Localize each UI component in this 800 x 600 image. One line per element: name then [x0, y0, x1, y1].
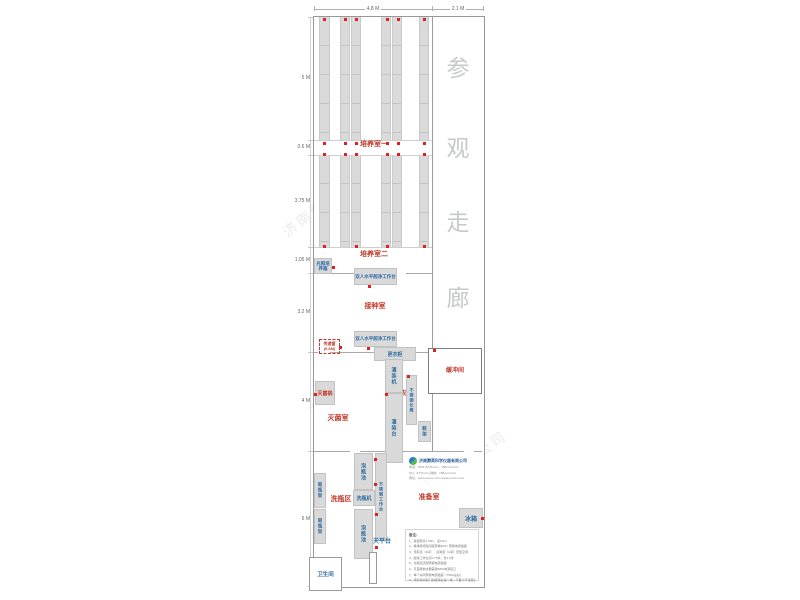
power-outlet-dot	[355, 245, 358, 248]
power-outlet-dot	[332, 266, 335, 269]
toilet: 卫生间	[309, 557, 342, 591]
power-outlet-dot	[397, 18, 400, 21]
transfer-window: 传递窗(0.6M)	[319, 339, 340, 354]
buffer-room: 缓冲间	[428, 348, 482, 394]
power-outlet-dot	[423, 18, 426, 21]
power-outlet-dot	[355, 142, 358, 145]
wall	[314, 352, 318, 353]
balance-table	[369, 552, 377, 584]
filling-machine: 灌装机	[385, 359, 403, 393]
room-label-preparation: 准备室	[404, 494, 454, 502]
power-outlet-dot	[323, 153, 326, 156]
dimension-label: 5 M	[294, 75, 310, 81]
room-label-buffer: 缓冲间	[446, 368, 464, 375]
corridor-title-char: 走	[432, 203, 484, 237]
floor-plan-page: 济南腾昊科学仪器有限公司 济南腾昊科学仪器有限公司 济南腾昊科学仪器有限公司 4…	[0, 0, 800, 600]
stainless-worktable: 不锈钢工作台	[375, 453, 387, 541]
dimension-top-room: 4.8 M	[314, 5, 432, 13]
power-outlet-dot	[355, 153, 358, 156]
room-label-sterilization: 灭菌室	[316, 415, 360, 423]
company-logo-icon	[409, 457, 417, 465]
power-outlet-dot	[355, 18, 358, 21]
power-outlet-dot	[423, 245, 426, 248]
left-dimension-rail	[310, 17, 311, 587]
floor-plan: 4.8 M 2.1 M 5 M 0.6 M 3.75 M 1.05 M 3.2 …	[313, 16, 485, 588]
dimension-label: 3.75 M	[294, 198, 310, 204]
power-outlet-dot	[367, 347, 370, 350]
dimension-label: 1.05 M	[294, 257, 310, 263]
corridor-title-char: 参	[432, 49, 484, 83]
sterilizer: 灭菌锅	[315, 381, 335, 405]
shoe-rack: 鞋架	[418, 421, 431, 442]
dimension-label: 6 M	[294, 516, 310, 522]
dimension-top-corridor: 2.1 M	[432, 5, 484, 13]
wall	[314, 451, 350, 452]
company-name: 济南腾昊科学仪器有限公司	[419, 457, 467, 465]
culture-rack	[392, 17, 402, 140]
culture-rack	[351, 17, 361, 140]
drying-rack: 晾瓶架	[314, 473, 326, 508]
power-outlet-dot	[323, 245, 326, 248]
filling-table: 灌装台	[385, 393, 403, 463]
culture-rack	[419, 17, 429, 140]
dimension-label: 4 M	[294, 398, 310, 404]
power-outlet-dot	[344, 142, 347, 145]
power-outlet-dot	[386, 18, 389, 21]
culture-rack	[319, 17, 330, 140]
power-outlet-dot	[314, 393, 317, 396]
power-outlet-dot	[368, 285, 371, 288]
drying-rack: 晾瓶架	[314, 509, 326, 544]
power-outlet-dot	[397, 142, 400, 145]
power-outlet-dot	[407, 375, 410, 378]
power-outlet-dot	[423, 153, 426, 156]
power-outlet-dot	[344, 153, 347, 156]
power-outlet-dot	[386, 153, 389, 156]
power-outlet-dot	[374, 483, 377, 486]
soak-pool: 泡瓶池	[354, 453, 373, 490]
notes-title: 备注：	[409, 532, 475, 539]
power-outlet-dot	[386, 245, 389, 248]
power-outlet-dot	[385, 393, 388, 396]
note-item: 3、培养室（3间）、接种室（2间）安装空调	[409, 550, 475, 556]
power-outlet-dot	[481, 517, 484, 520]
power-outlet-dot	[375, 546, 378, 549]
room-label-culture2: 培养室二	[334, 251, 414, 259]
culture-rack	[340, 155, 350, 247]
culture-rack	[340, 17, 350, 140]
stainless-bench: 不锈钢长凳	[406, 375, 417, 425]
culture-rack	[419, 155, 429, 247]
room-label-inoculation: 接种室	[345, 303, 405, 311]
light-incubator: 光照培养箱	[314, 258, 332, 274]
notes-block: 备注： 1、栽培架长1.25m，宽0.5m2、每排栽培架间距离墙35cm 预留电…	[405, 529, 479, 581]
culture-rack	[351, 155, 361, 247]
company-info: 济南腾昊科学仪器有限公司 电话：0531-8779xxxx，158xxxxxxx…	[409, 457, 475, 482]
power-outlet-dot	[323, 142, 326, 145]
culture-rack	[381, 155, 391, 247]
bottle-washer: 洗瓶机	[353, 490, 375, 506]
power-outlet-dot	[386, 142, 389, 145]
clean-bench: 双人水平超净工作台	[354, 268, 397, 285]
power-outlet-dot	[323, 18, 326, 21]
wall	[406, 273, 432, 274]
culture-rack	[392, 155, 402, 247]
balance-table-label: 天平台	[373, 536, 391, 545]
corridor-title-char: 廊	[432, 279, 484, 313]
wall	[474, 451, 482, 452]
company-web: 网址：www.xxxxxx.com www.xxxxxx.com	[409, 476, 475, 482]
note-item: 8、培养架间和门的距离在第一排，不要小于走廊宽度	[409, 578, 475, 584]
wall	[432, 394, 433, 451]
culture-rack	[381, 17, 391, 140]
wall	[314, 247, 432, 248]
power-outlet-dot	[423, 142, 426, 145]
wall	[314, 155, 432, 156]
dimension-label: 3.2 M	[294, 309, 310, 315]
notes-list: 1、栽培架长1.25m，宽0.5m2、每排栽培架间距离墙35cm 预留电源插座3…	[409, 539, 475, 585]
corridor-title-char: 观	[432, 129, 484, 163]
power-outlet-dot	[433, 349, 436, 352]
power-outlet-dot	[344, 18, 347, 21]
power-outlet-dot	[397, 153, 400, 156]
culture-rack	[319, 155, 330, 247]
power-outlet-dot	[375, 513, 378, 516]
power-outlet-dot	[374, 458, 377, 461]
fridge: 冰箱	[459, 508, 483, 528]
power-outlet-dot	[339, 346, 342, 349]
clean-bench: 双人水平超净工作台	[354, 331, 397, 347]
wall	[360, 451, 464, 452]
dimension-label: 0.6 M	[294, 144, 310, 150]
